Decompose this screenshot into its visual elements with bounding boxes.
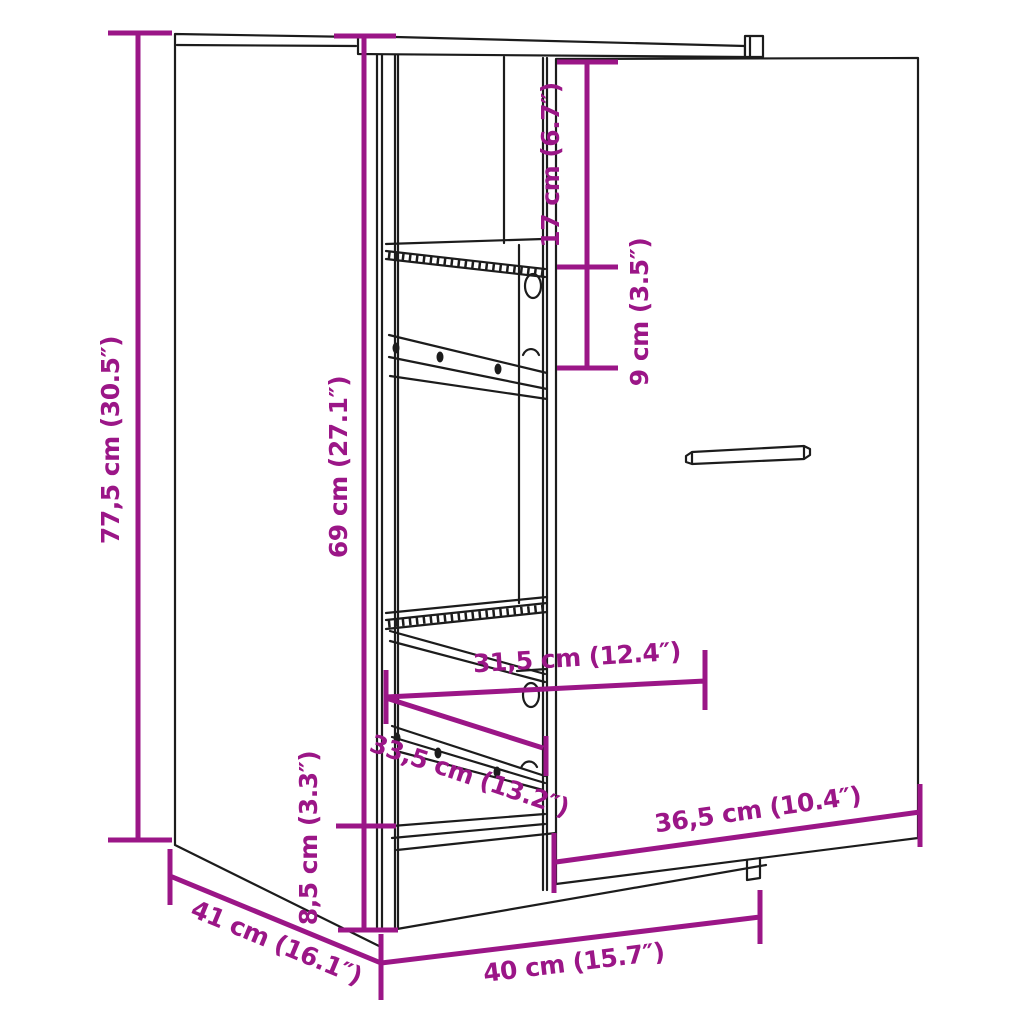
dim-width-label: 40 cm (15.7″) — [482, 937, 666, 988]
rail-knob — [495, 364, 502, 375]
upper-basket-rails — [389, 335, 547, 399]
dim-depth-label: 41 cm (16.1″) — [187, 894, 367, 991]
lower-basket-bump — [521, 762, 537, 768]
top-panel-strip — [358, 36, 745, 57]
dim-total-height-label: 77,5 cm (30.5″) — [96, 336, 125, 544]
dim-width-line — [381, 890, 760, 1000]
dim-plinth-height-line — [338, 826, 398, 930]
dim-plinth-height-label: 8,5 cm (3.3″) — [294, 751, 323, 925]
dim-body-height-label: 69 cm (27.1″) — [324, 376, 353, 558]
rail-knob — [393, 343, 400, 354]
dimension-diagram: 77,5 cm (30.5″) 69 cm (27.1″) 8,5 cm (3.… — [0, 0, 1024, 1024]
door-front-panel — [556, 58, 918, 884]
dim-shelf-spacing-label: 9 cm (3.5″) — [625, 238, 654, 386]
cabinet-line-drawing: 77,5 cm (30.5″) 69 cm (27.1″) 8,5 cm (3.… — [0, 0, 1024, 1024]
door-outline — [556, 58, 918, 884]
unit-interior-edges — [504, 57, 519, 603]
top-panel-end-cap — [745, 36, 763, 57]
upper-basket-hole — [525, 274, 541, 298]
lower-basket-hole — [523, 683, 539, 707]
dim-top-clearance-label: 17 cm (6.7″) — [536, 82, 565, 247]
front-edge-lines — [377, 40, 398, 930]
unit-bottom-band — [392, 814, 545, 838]
rail-knob — [437, 352, 444, 363]
upper-basket-bump — [523, 349, 539, 355]
